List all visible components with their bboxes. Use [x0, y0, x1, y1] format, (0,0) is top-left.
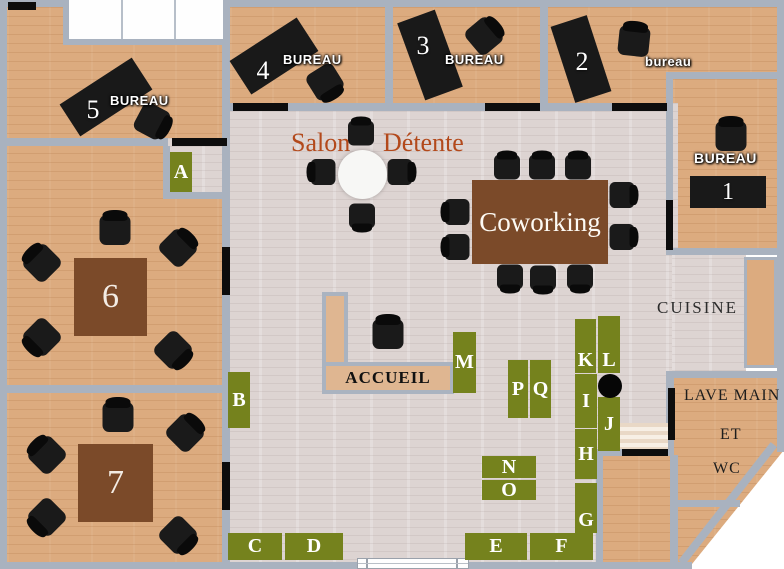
- door-opening: [222, 247, 230, 295]
- chair-icon: [445, 199, 470, 225]
- door-opening: [666, 200, 673, 250]
- chair-icon: [617, 24, 651, 57]
- salon-label-word1: Salon: [291, 128, 350, 158]
- wall: [230, 103, 668, 111]
- wall: [596, 449, 603, 562]
- window-mullion: [121, 0, 123, 39]
- chair-icon: [610, 182, 635, 208]
- room-4-label: BUREAU: [283, 52, 342, 67]
- chair-icon: [388, 159, 413, 185]
- wall: [226, 0, 784, 7]
- marker-j[interactable]: J: [598, 397, 620, 451]
- chair-icon: [497, 265, 523, 290]
- room-number: 1: [722, 179, 734, 206]
- accueil-label: ACCUEIL: [345, 368, 430, 388]
- marker-h[interactable]: H: [575, 429, 597, 479]
- room-5-label: BUREAU: [110, 93, 169, 108]
- door-opening: [233, 103, 288, 111]
- window-mullion: [174, 0, 176, 39]
- chair-icon: [103, 402, 134, 432]
- wall: [670, 455, 678, 562]
- wall: [163, 146, 170, 194]
- room-1-label: BUREAU: [694, 150, 757, 166]
- marker-a[interactable]: A: [170, 152, 192, 192]
- table-7: 7: [78, 444, 153, 522]
- coworking-table: Coworking: [472, 180, 608, 264]
- lave-main-label: LAVE MAIN: [684, 387, 780, 405]
- accueil-desk: [322, 292, 348, 364]
- chair-icon: [445, 234, 470, 260]
- chair-icon: [529, 155, 555, 180]
- room-number: 3: [410, 31, 436, 61]
- marker-o[interactable]: O: [482, 480, 536, 500]
- wc-label: WC: [713, 460, 741, 478]
- wall: [674, 500, 740, 507]
- marker-e[interactable]: E: [465, 533, 527, 560]
- wall: [0, 385, 223, 393]
- chair-icon: [530, 266, 556, 291]
- storage-room-floor: [596, 451, 680, 563]
- chair-icon: [100, 215, 131, 245]
- door-opening: [612, 103, 667, 111]
- door-opening: [172, 138, 227, 146]
- wall: [666, 371, 784, 378]
- marker-p[interactable]: P: [508, 360, 528, 418]
- marker-b[interactable]: B: [228, 372, 250, 428]
- wall: [666, 248, 784, 255]
- wall: [666, 72, 784, 79]
- chair-icon: [373, 319, 404, 349]
- table-6: 6: [74, 258, 147, 336]
- door-rail: [358, 563, 468, 564]
- room-3-label: BUREAU: [445, 52, 504, 67]
- office-floor-plan: 1 5 4 3 2 6 7 Coworking ACCUEIL: [0, 0, 784, 569]
- wall: [385, 0, 393, 110]
- room-number: 4: [250, 56, 276, 86]
- wall: [0, 562, 692, 569]
- chair-icon: [716, 121, 747, 151]
- et-label: ET: [720, 426, 742, 444]
- marker-d[interactable]: D: [285, 533, 343, 560]
- chair-icon: [610, 224, 635, 250]
- door-opening: [222, 462, 230, 510]
- wall: [0, 138, 168, 146]
- accueil-desk: ACCUEIL: [322, 362, 454, 394]
- bay-window: [63, 0, 229, 45]
- room-number: 2: [569, 47, 595, 77]
- door-opening: [668, 388, 675, 440]
- room-2-label: bureau: [645, 54, 691, 69]
- chair-icon: [311, 159, 336, 185]
- wall: [163, 192, 223, 199]
- chair-icon: [349, 204, 375, 229]
- position-dot: [598, 374, 622, 398]
- salon-label-word2: Détente: [383, 128, 464, 158]
- chair-icon: [494, 155, 520, 180]
- desk-1: 1: [690, 176, 766, 208]
- marker-n[interactable]: N: [482, 456, 536, 478]
- wall: [777, 0, 784, 452]
- chair-icon: [565, 155, 591, 180]
- marker-i[interactable]: I: [575, 374, 597, 428]
- coworking-label: Coworking: [479, 207, 601, 238]
- cuisine-label: CUISINE: [657, 298, 738, 318]
- entry-mat: [618, 423, 668, 449]
- room-number: 7: [107, 464, 124, 502]
- chair-icon: [567, 265, 593, 290]
- wall: [540, 0, 548, 110]
- door-opening: [622, 449, 668, 456]
- marker-m[interactable]: M: [453, 332, 476, 393]
- room-number: 5: [80, 95, 106, 125]
- door-opening: [485, 103, 540, 111]
- marker-k[interactable]: K: [575, 319, 596, 373]
- kitchen-counter: [744, 257, 777, 368]
- chair-icon: [348, 121, 374, 146]
- marker-f[interactable]: F: [530, 533, 593, 560]
- marker-c[interactable]: C: [228, 533, 282, 560]
- wall: [0, 0, 7, 569]
- marker-l[interactable]: L: [598, 316, 620, 373]
- glazed-door: [357, 558, 469, 569]
- room-number: 6: [102, 278, 119, 316]
- marker-g[interactable]: G: [575, 483, 597, 533]
- door-opening: [8, 2, 36, 10]
- marker-q[interactable]: Q: [530, 360, 551, 418]
